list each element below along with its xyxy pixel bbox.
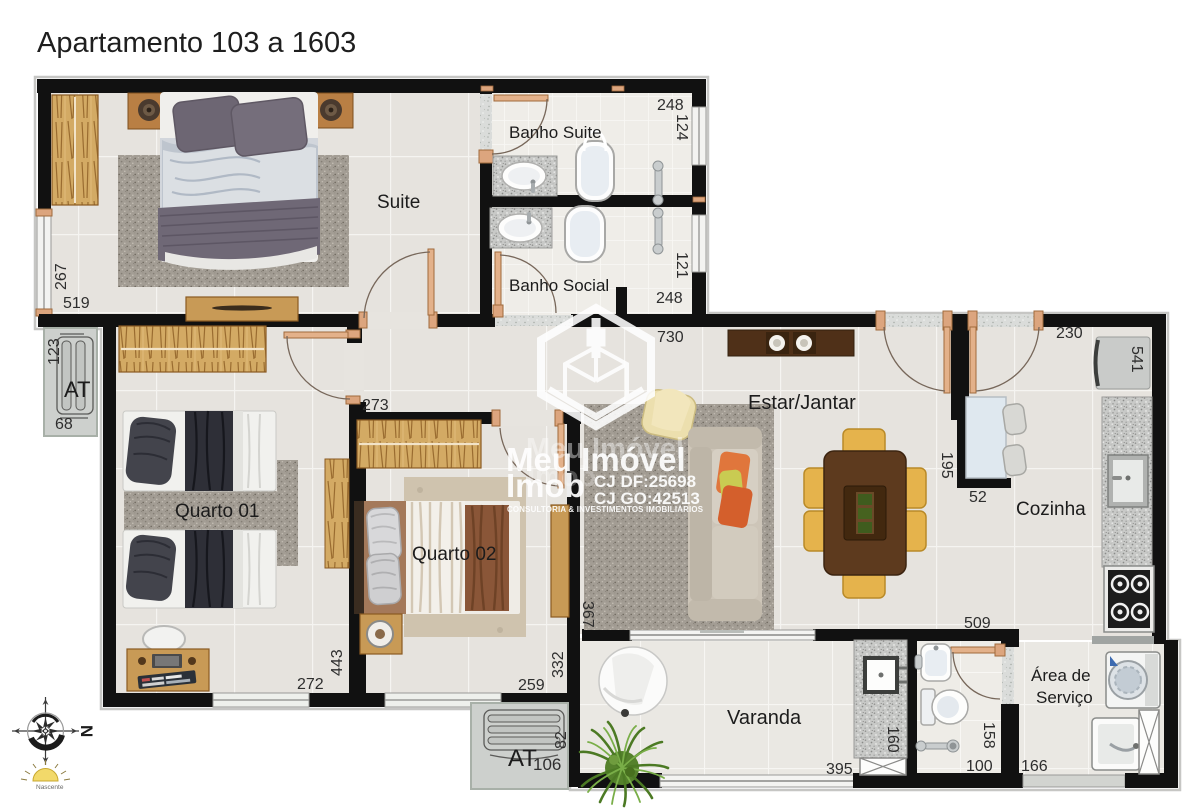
svg-text:Banho Social: Banho Social (509, 276, 609, 295)
svg-text:Estar/Jantar: Estar/Jantar (748, 392, 856, 414)
svg-text:Serviço: Serviço (1036, 688, 1093, 707)
svg-text:Apartamento 103 a 1603: Apartamento 103 a 1603 (37, 27, 356, 59)
svg-text:395: 395 (826, 761, 853, 778)
svg-text:443: 443 (329, 649, 346, 676)
svg-text:273: 273 (362, 397, 389, 414)
svg-text:Quarto 01: Quarto 01 (175, 501, 260, 522)
svg-text:519: 519 (63, 295, 90, 312)
svg-text:Suite: Suite (377, 192, 420, 213)
svg-text:121: 121 (673, 252, 690, 279)
svg-text:509: 509 (964, 615, 991, 632)
svg-text:166: 166 (1021, 758, 1048, 775)
svg-text:124: 124 (673, 114, 690, 141)
svg-text:82: 82 (553, 731, 570, 749)
svg-text:267: 267 (53, 263, 70, 290)
svg-text:332: 332 (550, 651, 567, 678)
svg-text:Varanda: Varanda (727, 707, 802, 729)
svg-text:730: 730 (657, 329, 684, 346)
svg-text:Cozinha: Cozinha (1016, 499, 1086, 520)
svg-text:100: 100 (966, 758, 993, 775)
svg-text:Imob: Imob (506, 467, 585, 504)
svg-text:230: 230 (1056, 325, 1083, 342)
svg-text:259: 259 (518, 677, 545, 694)
svg-text:AT: AT (64, 377, 90, 402)
svg-text:N: N (77, 725, 96, 737)
svg-text:160: 160 (884, 726, 901, 753)
svg-text:CONSULTORIA & INVESTIMENTOS IM: CONSULTORIA & INVESTIMENTOS IMOBILIÁRIOS (507, 505, 703, 514)
svg-text:541: 541 (1128, 346, 1145, 373)
svg-text:106: 106 (533, 755, 561, 774)
svg-text:123: 123 (46, 338, 63, 365)
svg-text:248: 248 (657, 97, 684, 114)
svg-text:195: 195 (938, 452, 955, 479)
svg-text:158: 158 (980, 722, 997, 749)
svg-text:Nascente: Nascente (36, 784, 64, 791)
svg-text:Área de: Área de (1031, 666, 1091, 685)
svg-text:Quarto 02: Quarto 02 (412, 544, 497, 565)
svg-text:Banho Suite: Banho Suite (509, 123, 602, 142)
svg-text:367: 367 (579, 601, 596, 628)
svg-text:272: 272 (297, 676, 324, 693)
svg-text:248: 248 (656, 290, 683, 307)
svg-text:68: 68 (55, 416, 73, 433)
svg-text:52: 52 (969, 489, 987, 506)
